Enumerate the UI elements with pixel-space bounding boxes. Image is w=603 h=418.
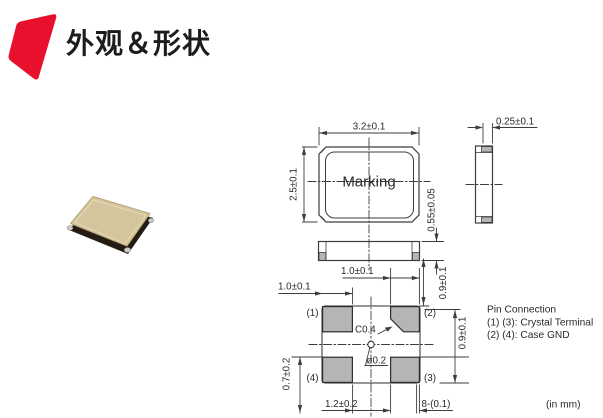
dim-right-mid-label: 0.9±0.1 (458, 317, 469, 350)
dim-side-pad-label: 0.25±0.1 (496, 117, 534, 128)
dim-thickness-label: 0.55±0.05 (427, 188, 438, 232)
dim-left-bottom (292, 357, 321, 413)
dim-pad-width-mid-label: 1.0±0.1 (341, 266, 374, 277)
pin-connection-line2: (2) (4): Case GND (487, 330, 570, 341)
pin-connection-line1: (1) (3): Crystal Terminal (487, 318, 593, 329)
hole-label: ø0.2 (367, 356, 387, 367)
dim-height-2-5 (302, 147, 317, 222)
chamfer-callout (378, 327, 393, 335)
marking-label: Marking (342, 174, 395, 191)
side-view-bottom-pad (482, 217, 493, 222)
pad-2 (391, 307, 420, 332)
dim-pad-width-left-label: 1.0±0.1 (278, 282, 311, 293)
pad-1 (323, 307, 353, 332)
pad-3 (391, 357, 420, 382)
units-note: (in mm) (546, 400, 581, 411)
datasheet-page: 外观＆形状 Marking 3.2±0. (0, 0, 603, 418)
dim-height-label: 2.5±0.1 (289, 168, 300, 201)
front-view-right-pad (412, 253, 419, 261)
pad1-label: (1) (307, 308, 319, 319)
side-view (466, 146, 502, 223)
front-view-left-pad (319, 253, 326, 261)
dim-right-top-label: 0.9±0.1 (438, 267, 449, 300)
pad4-label: (4) (307, 373, 319, 384)
dim-left-bottom-label: 0.7±0.2 (282, 358, 293, 391)
chamfer-label: C0.4 (355, 325, 376, 336)
side-view-top-pad (482, 147, 493, 152)
dim-corner-radius-label: 8-(0.1) (422, 399, 451, 410)
dim-width-label: 3.2±0.1 (353, 122, 386, 133)
technical-drawing: Marking 3.2±0.1 2.5±0.1 0.2 (0, 0, 603, 418)
dim-gap-bottom-label: 1.2±0.2 (325, 399, 358, 410)
dim-right-top (420, 259, 429, 306)
pad-4 (323, 357, 353, 382)
center-hole (368, 341, 374, 347)
pin-connection-title: Pin Connection (487, 305, 556, 316)
pad3-label: (3) (424, 373, 436, 384)
